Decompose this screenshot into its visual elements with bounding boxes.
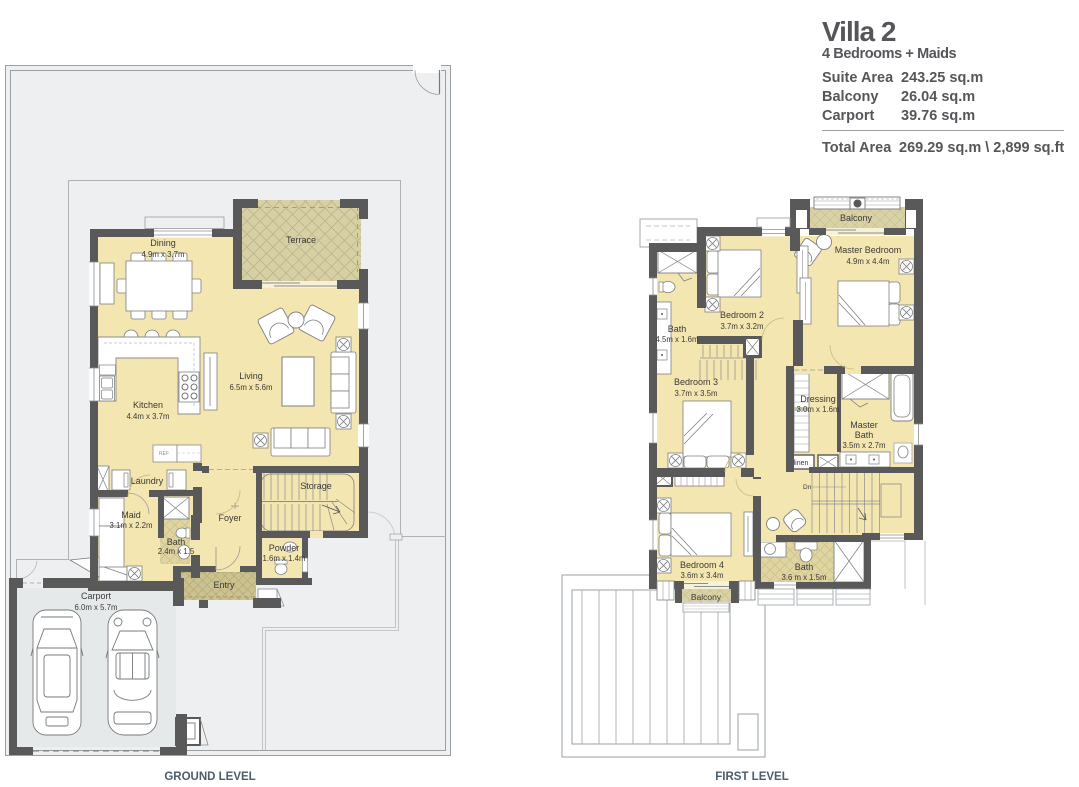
svg-text:Total Area: Total Area: [822, 140, 892, 156]
svg-text:3.1m x 2.2m: 3.1m x 2.2m: [110, 521, 153, 530]
svg-text:243.25 sq.m: 243.25 sq.m: [901, 70, 983, 86]
svg-text:26.04 sq.m: 26.04 sq.m: [901, 89, 975, 105]
svg-text:Kitchen: Kitchen: [133, 400, 163, 410]
svg-text:3.6 m x 1.5m: 3.6 m x 1.5m: [781, 573, 826, 582]
svg-text:2.4m x 1.5: 2.4m x 1.5: [158, 547, 195, 556]
svg-text:Suite Area: Suite Area: [822, 70, 894, 86]
svg-text:Bedroom 3: Bedroom 3: [674, 377, 718, 387]
svg-text:Foyer: Foyer: [218, 513, 241, 523]
svg-text:Bath: Bath: [167, 537, 186, 547]
svg-text:6.0m x 5.7m: 6.0m x 5.7m: [75, 603, 118, 612]
svg-text:4.5m x 1.6m: 4.5m x 1.6m: [656, 335, 699, 344]
svg-text:4 Bedrooms + Maids: 4 Bedrooms + Maids: [822, 46, 957, 62]
svg-text:Carport: Carport: [81, 591, 112, 601]
svg-text:3.6m x 3.4m: 3.6m x 3.4m: [681, 571, 724, 580]
svg-text:Bedroom 2: Bedroom 2: [720, 310, 764, 320]
svg-text:Carport: Carport: [822, 108, 875, 124]
svg-text:Dining: Dining: [150, 238, 176, 248]
svg-text:Dressing: Dressing: [800, 394, 836, 404]
svg-text:4.9m x 3.7m: 4.9m x 3.7m: [142, 250, 185, 259]
svg-text:4.9m x 4.4m: 4.9m x 4.4m: [847, 257, 890, 266]
svg-text:Bath: Bath: [855, 430, 874, 440]
svg-text:Bath: Bath: [795, 562, 814, 572]
svg-text:GROUND LEVEL: GROUND LEVEL: [164, 771, 255, 783]
svg-text:4.4m x 3.7m: 4.4m x 3.7m: [127, 412, 170, 421]
svg-text:Laundry: Laundry: [131, 476, 164, 486]
svg-text:Balcony: Balcony: [822, 89, 878, 105]
svg-text:3.5m x 2.7m: 3.5m x 2.7m: [843, 441, 886, 450]
svg-text:Powder: Powder: [269, 543, 300, 553]
svg-text:Master Bedroom: Master Bedroom: [835, 245, 902, 255]
svg-text:Balcony: Balcony: [840, 213, 873, 223]
svg-text:Maid: Maid: [121, 510, 141, 520]
svg-text:REF: REF: [159, 451, 169, 457]
svg-text:Bedroom 4: Bedroom 4: [680, 560, 724, 570]
svg-text:Entry: Entry: [213, 580, 235, 590]
svg-text:1.6m x 1.4m: 1.6m x 1.4m: [263, 554, 306, 563]
svg-text:Storage: Storage: [300, 481, 332, 491]
svg-text:39.76 sq.m: 39.76 sq.m: [901, 108, 975, 124]
svg-text:Master: Master: [850, 420, 878, 430]
svg-text:3.7m x 3.2m: 3.7m x 3.2m: [721, 322, 764, 331]
svg-text:Dn: Dn: [803, 484, 812, 491]
svg-text:Balcony: Balcony: [691, 592, 722, 602]
svg-text:3.7m x 3.5m: 3.7m x 3.5m: [675, 389, 718, 398]
svg-text:6.5m x 5.6m: 6.5m x 5.6m: [230, 383, 273, 392]
svg-text:269.29 sq.m \ 2,899 sq.ft: 269.29 sq.m \ 2,899 sq.ft: [899, 140, 1064, 156]
svg-text:Villa 2: Villa 2: [822, 16, 896, 47]
svg-text:Terrace: Terrace: [286, 235, 316, 245]
svg-text:linen: linen: [794, 460, 809, 467]
svg-text:Bath: Bath: [668, 324, 687, 334]
svg-text:FIRST LEVEL: FIRST LEVEL: [715, 771, 788, 783]
svg-text:Living: Living: [239, 371, 263, 381]
svg-text:3.0m x 1.6m: 3.0m x 1.6m: [797, 405, 840, 414]
